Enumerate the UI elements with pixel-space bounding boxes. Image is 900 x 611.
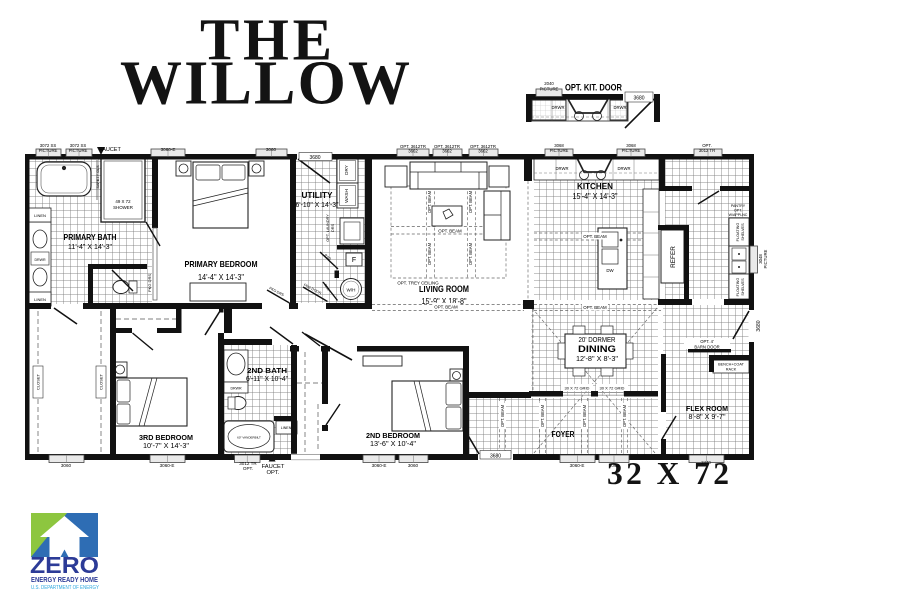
svg-text:14'-4" X 14'-3": 14'-4" X 14'-3" xyxy=(198,273,244,282)
svg-text:3048PICTURE: 3048PICTURE xyxy=(758,249,768,268)
svg-text:PRIMARY BATH: PRIMARY BATH xyxy=(64,233,117,242)
svg-text:3662: 3662 xyxy=(478,149,488,154)
svg-text:DRWR: DRWR xyxy=(618,166,631,171)
svg-text:OPT. BEAM: OPT. BEAM xyxy=(438,229,462,234)
svg-text:FLEX ROOM: FLEX ROOM xyxy=(686,404,728,413)
svg-text:W/H: W/H xyxy=(347,288,356,293)
svg-text:LINEN: LINEN xyxy=(34,213,46,218)
svg-text:OPT. BEAM: OPT. BEAM xyxy=(622,404,627,427)
svg-text:DRWR: DRWR xyxy=(552,105,565,110)
svg-text:FLOATINGSHELVES: FLOATINGSHELVES xyxy=(736,223,745,242)
svg-text:PRIMARY BEDROOM: PRIMARY BEDROOM xyxy=(185,259,258,269)
svg-text:13'-6" X 10'-4": 13'-6" X 10'-4" xyxy=(370,441,417,448)
svg-text:ENERGY READY HOME: ENERGY READY HOME xyxy=(31,577,98,584)
svg-text:DW: DW xyxy=(606,268,614,273)
svg-text:WILLOW: WILLOW xyxy=(120,50,410,118)
svg-text:OPT. BEAM: OPT. BEAM xyxy=(583,305,607,310)
svg-text:OPT. BEAM: OPT. BEAM xyxy=(540,404,545,427)
svg-text:8'-8" X 9'-7": 8'-8" X 9'-7" xyxy=(689,414,727,421)
svg-text:LINEN: LINEN xyxy=(34,297,46,302)
svg-text:3060-E: 3060-E xyxy=(570,463,585,468)
svg-text:OPT. BEAM: OPT. BEAM xyxy=(434,305,458,310)
svg-text:U.S. DEPARTMENT OF ENERGY: U.S. DEPARTMENT OF ENERGY xyxy=(31,585,100,591)
svg-text:UTILITY: UTILITY xyxy=(302,191,334,200)
svg-text:DRWR: DRWR xyxy=(556,166,569,171)
svg-text:11'-4" X 14'-3": 11'-4" X 14'-3" xyxy=(68,242,112,251)
svg-text:12'-8" X 8'-3": 12'-8" X 8'-3" xyxy=(576,354,618,363)
svg-text:2ND BATH: 2ND BATH xyxy=(247,366,287,375)
svg-text:BARN DOOR: BARN DOOR xyxy=(694,345,719,350)
svg-text:W/APPLNC: W/APPLNC xyxy=(729,213,748,217)
svg-text:REFER: REFER xyxy=(670,246,677,268)
svg-text:LINEN: LINEN xyxy=(281,426,292,430)
svg-text:OPT. KIT. DOOR: OPT. KIT. DOOR xyxy=(565,83,622,93)
svg-text:RACK: RACK xyxy=(726,368,737,372)
svg-text:DRY: DRY xyxy=(344,165,349,175)
svg-text:30 X 72 GRID: 30 X 72 GRID xyxy=(600,386,625,391)
svg-text:DRWR: DRWR xyxy=(230,387,242,391)
svg-text:49 X 72: 49 X 72 xyxy=(115,199,131,204)
svg-text:DRWR: DRWR xyxy=(34,258,46,262)
svg-text:OPT. BEAM: OPT. BEAM xyxy=(468,242,473,265)
svg-text:20' DORMER: 20' DORMER xyxy=(579,337,616,344)
svg-text:3012 TR: 3012 TR xyxy=(699,148,715,153)
svg-text:OPT.: OPT. xyxy=(267,470,280,476)
svg-text:3060-E: 3060-E xyxy=(372,463,387,468)
svg-text:PICTURE: PICTURE xyxy=(540,87,559,92)
svg-text:OPT. BEAM: OPT. BEAM xyxy=(583,234,607,239)
svg-text:OPT. TREY CEILING: OPT. TREY CEILING xyxy=(397,281,439,286)
svg-text:PICTURE: PICTURE xyxy=(69,148,88,153)
svg-text:OPT. BEAM: OPT. BEAM xyxy=(500,404,505,427)
svg-text:BENCH+COAT: BENCH+COAT xyxy=(718,363,744,367)
svg-text:2440: 2440 xyxy=(701,460,711,465)
svg-text:3680: 3680 xyxy=(309,155,320,161)
svg-text:6'-10" X 14'-3": 6'-10" X 14'-3" xyxy=(296,200,339,209)
svg-text:2ND BEDROOM: 2ND BEDROOM xyxy=(366,431,420,440)
svg-text:15'-4" X 14'-3": 15'-4" X 14'-3" xyxy=(573,192,618,201)
svg-text:PKG DRS: PKG DRS xyxy=(147,274,152,292)
svg-text:3680: 3680 xyxy=(756,320,762,331)
svg-text:WASH: WASH xyxy=(344,189,349,203)
svg-text:3680: 3680 xyxy=(490,454,501,460)
svg-text:3662: 3662 xyxy=(408,149,418,154)
svg-text:PICTURE: PICTURE xyxy=(550,148,569,153)
svg-text:3662: 3662 xyxy=(442,149,452,154)
svg-text:OPT.: OPT. xyxy=(734,209,742,213)
svg-text:3060: 3060 xyxy=(408,463,419,468)
svg-text:FLOATINGSHELVES: FLOATINGSHELVES xyxy=(736,278,745,297)
svg-text:PICTURE: PICTURE xyxy=(622,148,641,153)
svg-text:PICTURE: PICTURE xyxy=(39,148,58,153)
svg-text:OPT. BEAM: OPT. BEAM xyxy=(468,190,473,213)
svg-text:OPT. 4': OPT. 4' xyxy=(700,339,714,344)
svg-text:OPT.: OPT. xyxy=(243,466,253,471)
svg-text:OPT. BEAM: OPT. BEAM xyxy=(427,190,432,213)
svg-text:KITCHEN: KITCHEN xyxy=(577,181,613,191)
svg-text:FOYER: FOYER xyxy=(552,430,575,439)
svg-text:ZERO: ZERO xyxy=(30,552,99,578)
svg-text:3060: 3060 xyxy=(609,463,620,468)
svg-text:60" VANDERBILT: 60" VANDERBILT xyxy=(237,436,261,440)
svg-text:FAUCET: FAUCET xyxy=(99,147,121,153)
svg-text:SHOWER: SHOWER xyxy=(113,205,133,210)
svg-text:3060: 3060 xyxy=(266,147,277,152)
svg-text:OPT. BEAM: OPT. BEAM xyxy=(582,404,587,427)
svg-text:2040: 2040 xyxy=(544,81,554,86)
svg-text:6'-11" X 10'-4": 6'-11" X 10'-4" xyxy=(246,376,288,383)
svg-text:3060-E: 3060-E xyxy=(161,147,176,152)
svg-text:3060: 3060 xyxy=(61,463,72,468)
svg-text:3RD BEDROOM: 3RD BEDROOM xyxy=(139,433,193,442)
svg-text:OPT. BEAM: OPT. BEAM xyxy=(427,242,432,265)
svg-text:3680: 3680 xyxy=(633,96,644,102)
svg-text:SAFETY GLS: SAFETY GLS xyxy=(96,165,100,189)
svg-text:PANTRY: PANTRY xyxy=(731,204,746,208)
svg-text:F: F xyxy=(352,257,356,264)
svg-text:10'-7" X 14'-3": 10'-7" X 14'-3" xyxy=(143,443,190,450)
svg-text:3060-E: 3060-E xyxy=(160,463,175,468)
svg-text:CLOSET: CLOSET xyxy=(36,373,41,390)
svg-text:CLOSET: CLOSET xyxy=(99,373,104,390)
svg-text:DRWR: DRWR xyxy=(614,105,627,110)
svg-text:30 X 72 GRID: 30 X 72 GRID xyxy=(565,386,590,391)
